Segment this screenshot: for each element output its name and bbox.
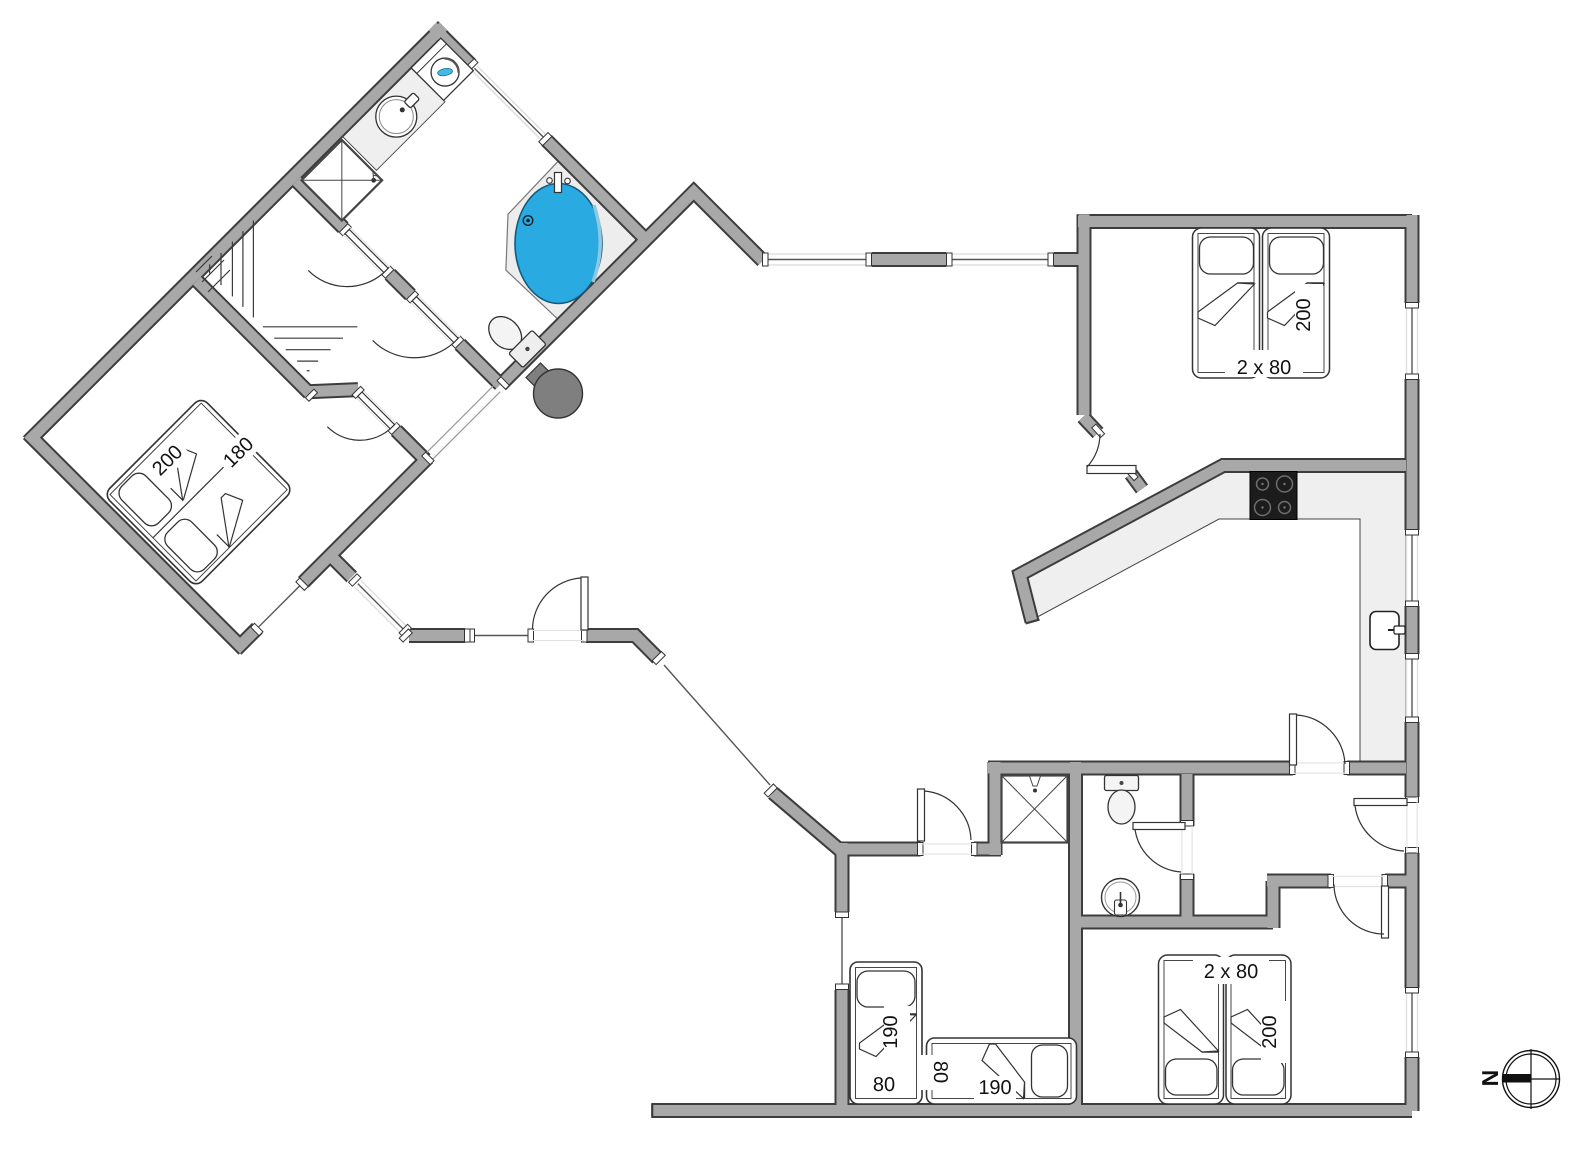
svg-text:200: 200	[1259, 1015, 1281, 1048]
svg-text:200: 200	[1293, 298, 1315, 331]
svg-text:80: 80	[873, 1074, 895, 1096]
svg-text:190: 190	[978, 1077, 1011, 1099]
svg-text:190: 190	[880, 1015, 902, 1048]
svg-text:N: N	[1477, 1070, 1503, 1087]
svg-text:80: 80	[929, 1061, 951, 1083]
svg-text:2 x 80: 2 x 80	[1237, 357, 1291, 379]
svg-text:2 x 80: 2 x 80	[1204, 961, 1258, 983]
